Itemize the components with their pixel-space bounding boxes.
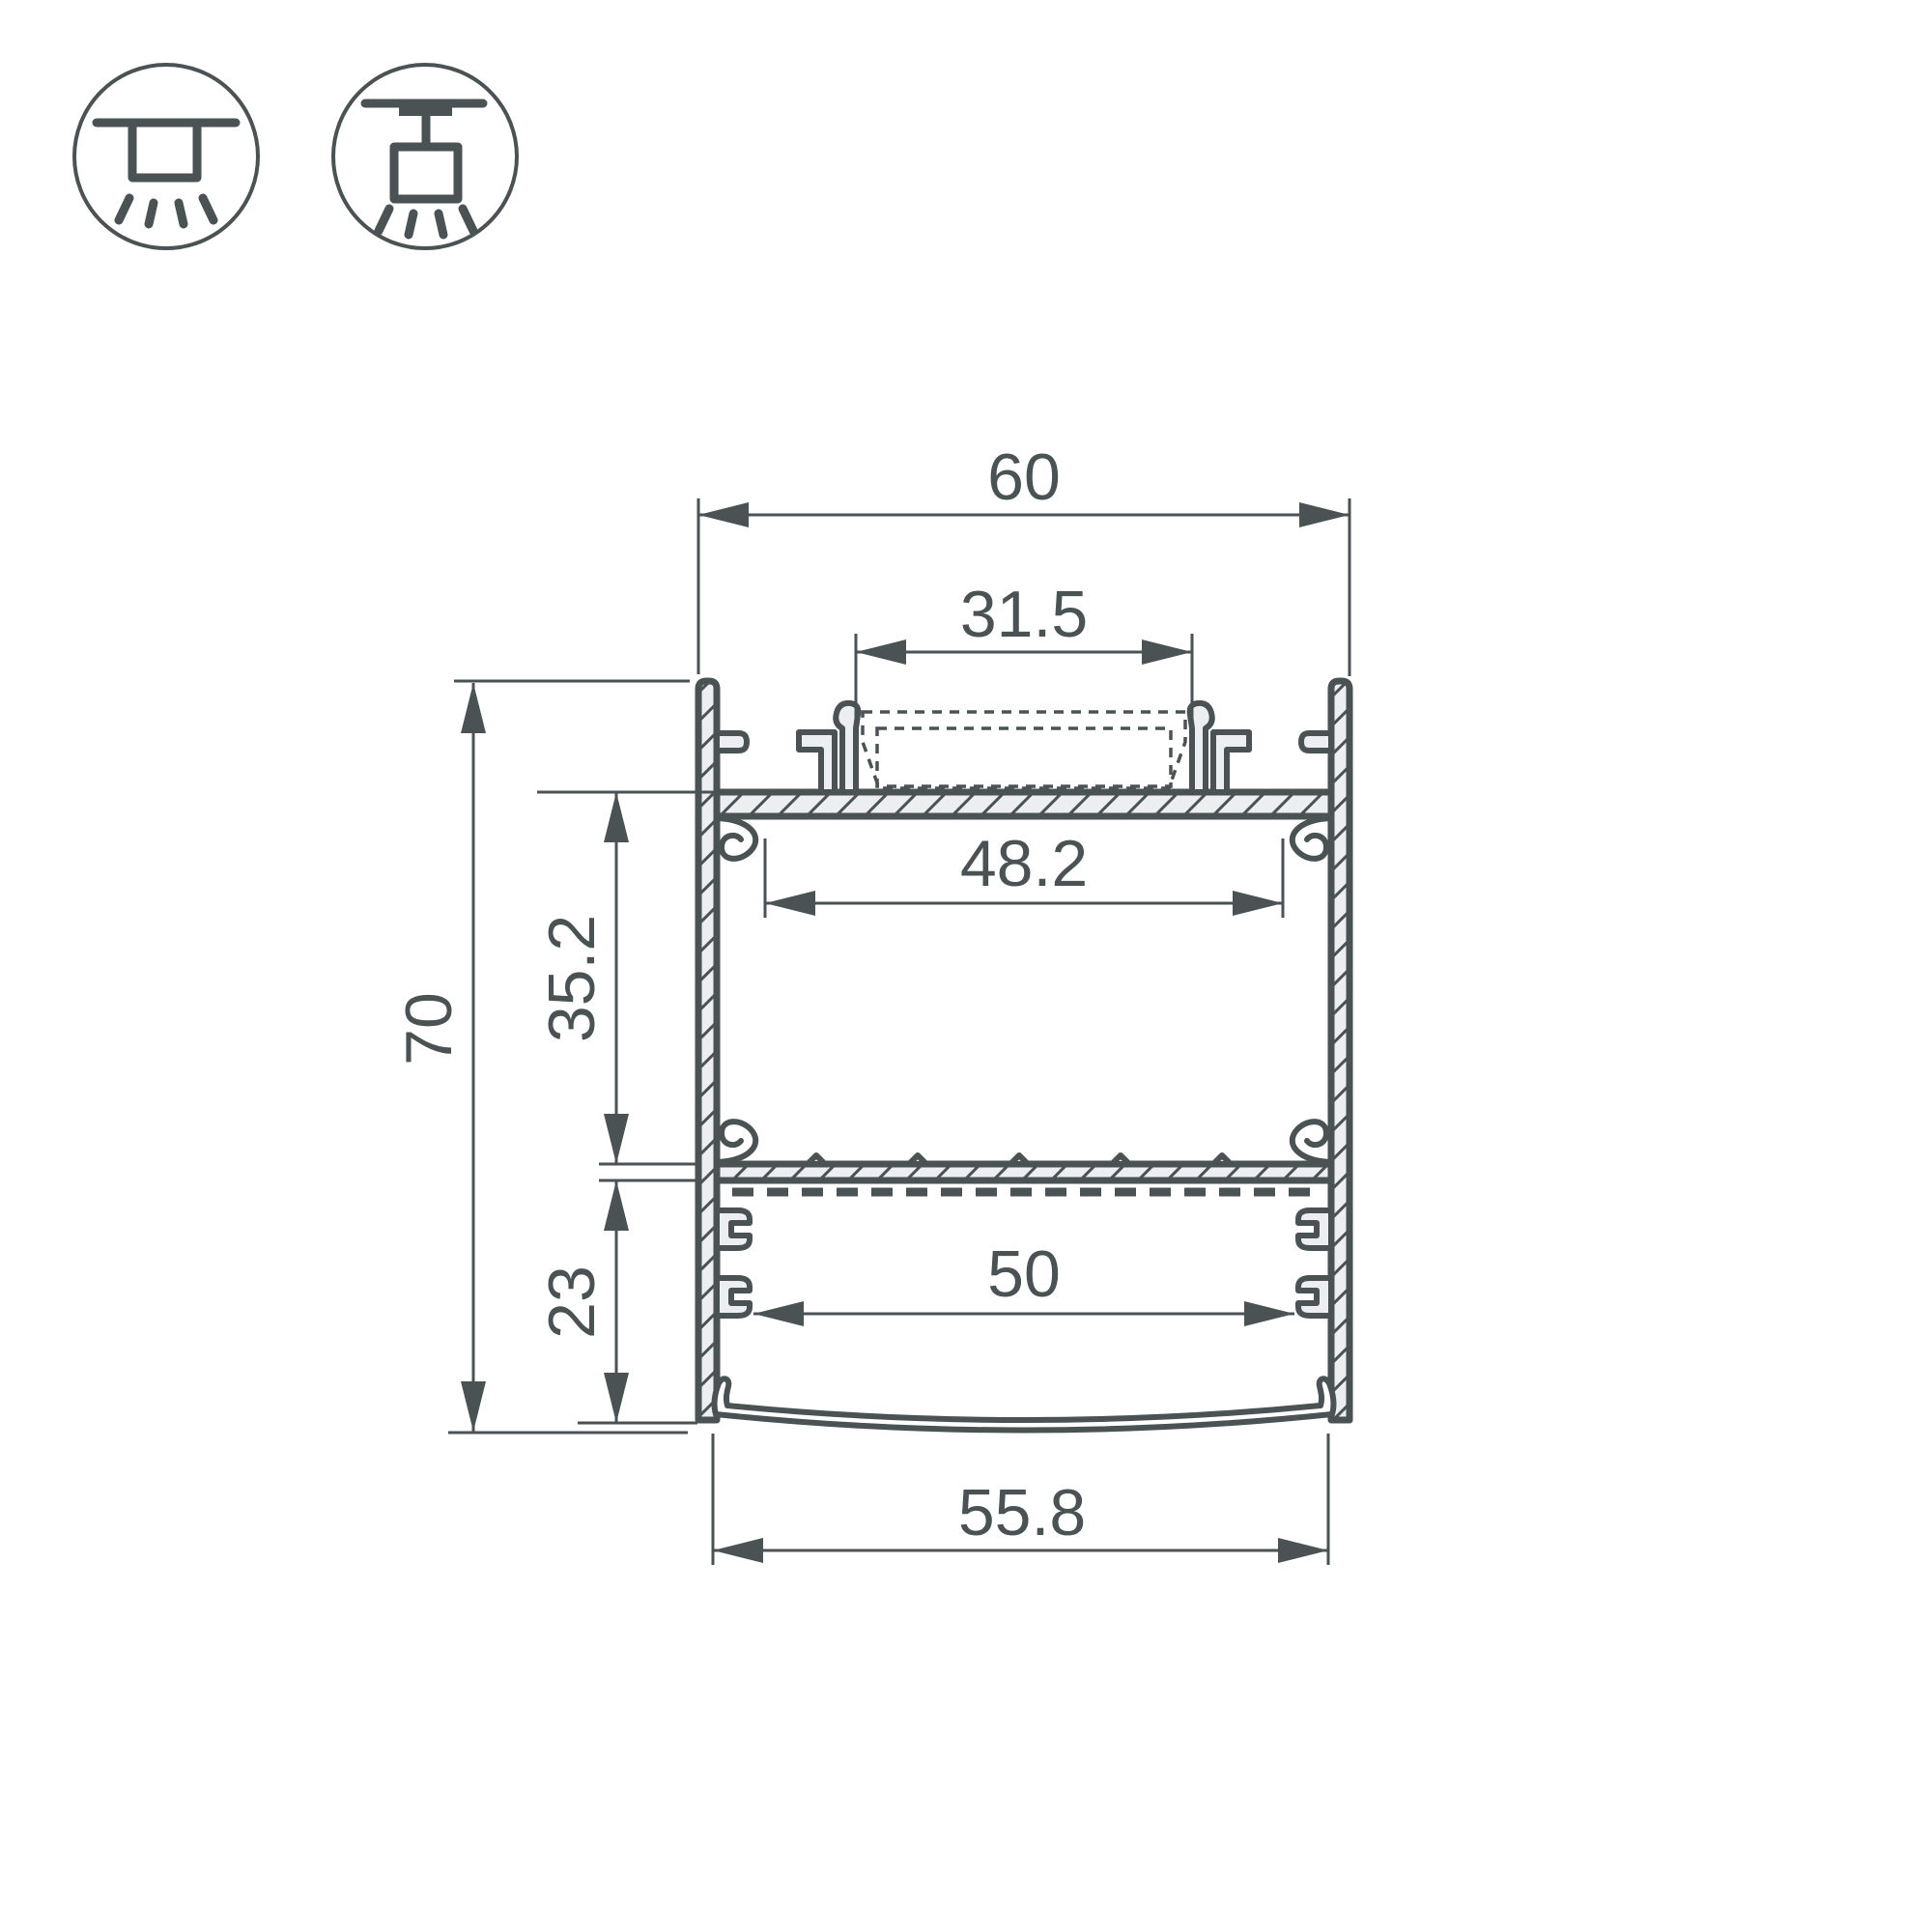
mount-finger-right xyxy=(1301,733,1331,751)
mounting-clip xyxy=(1298,1278,1331,1316)
dim-arrow xyxy=(461,1381,486,1432)
dim-inner-width-label: 48.2 xyxy=(960,827,1088,900)
mounting-clip xyxy=(1298,1210,1331,1248)
dim-arrow xyxy=(1142,639,1192,665)
dim-led-slot-width-label: 31.5 xyxy=(960,578,1088,651)
dim-arrow xyxy=(604,1114,629,1164)
flange-right xyxy=(1213,732,1249,792)
dim-arrow xyxy=(856,639,906,665)
mounting-icons xyxy=(74,65,517,248)
screw-boss-curl xyxy=(1293,818,1331,859)
dim-lower-chamber-height-label: 23 xyxy=(535,1265,609,1339)
dim-arrow xyxy=(1278,1538,1328,1563)
dim-lower-inner-width-label: 50 xyxy=(987,1237,1061,1311)
led-strip-outline xyxy=(877,728,1171,786)
dim-outer-width-label: 60 xyxy=(987,440,1061,514)
dim-total-height-label: 70 xyxy=(392,992,466,1065)
dim-arrow xyxy=(698,502,749,527)
diffuser-lens xyxy=(715,1378,1334,1430)
dim-inner-width: 48.2 xyxy=(765,827,1283,918)
dim-diffuser-width: 55.8 xyxy=(713,1434,1328,1565)
pendant-mount-icon-circle xyxy=(333,65,517,248)
screw-boss-curl xyxy=(717,818,755,859)
led-module-outline xyxy=(863,712,1185,788)
drawing-page: 60 31.5 48.2 50 55.8 xyxy=(0,0,1932,1932)
light-rays xyxy=(119,198,213,224)
dim-arrow xyxy=(765,891,815,916)
dim-arrow xyxy=(713,1538,763,1563)
top-plate xyxy=(717,792,1331,816)
dim-lower-inner-width: 50 xyxy=(753,1237,1294,1326)
mounting-clip xyxy=(717,1278,750,1316)
pendant-mount-icon xyxy=(333,65,517,248)
screw-boss-curl xyxy=(717,1122,755,1162)
dim-led-slot-width: 31.5 xyxy=(856,578,1192,719)
mount-finger-left xyxy=(717,733,747,751)
technical-drawing: 60 31.5 48.2 50 55.8 xyxy=(0,0,1932,1932)
dim-arrow xyxy=(604,792,629,842)
dim-upper-chamber-height-label: 35.2 xyxy=(535,915,609,1042)
light-rays xyxy=(379,209,473,235)
luminaire-body xyxy=(394,147,458,199)
dim-arrow xyxy=(1233,891,1283,916)
dim-diffuser-width-label: 55.8 xyxy=(958,1476,1086,1549)
dim-arrow xyxy=(753,1301,804,1326)
dim-arrow xyxy=(1244,1301,1294,1326)
surface-mount-icon-circle xyxy=(74,65,258,248)
surface-mount-icon xyxy=(74,65,258,248)
dim-upper-chamber-height: 35.2 xyxy=(535,792,715,1180)
dim-lower-chamber-height: 23 xyxy=(535,1180,697,1423)
dimensions: 60 31.5 48.2 50 55.8 xyxy=(392,440,1350,1565)
dim-arrow xyxy=(461,683,486,733)
flange-left xyxy=(799,732,835,792)
mounting-clip xyxy=(717,1210,750,1248)
dim-arrow xyxy=(604,1180,629,1231)
dim-arrow xyxy=(604,1373,629,1423)
dim-arrow xyxy=(1299,502,1350,527)
luminaire-body xyxy=(132,123,197,178)
screw-boss-curl xyxy=(1293,1122,1331,1162)
